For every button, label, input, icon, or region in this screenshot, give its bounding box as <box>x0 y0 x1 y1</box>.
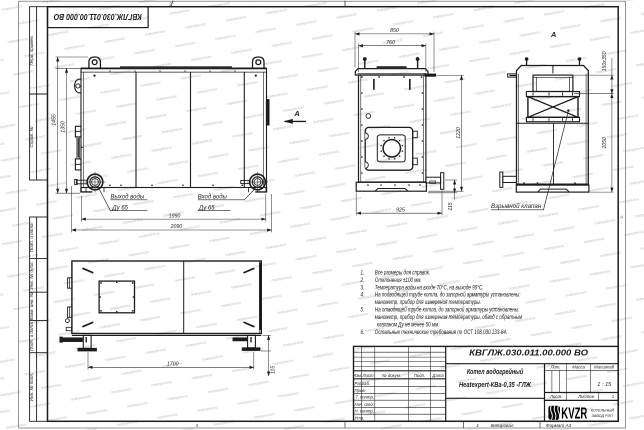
svg-text:клапаном Ду не менее 50 мм.: клапаном Ду не менее 50 мм. <box>377 322 440 329</box>
svg-text:На отводящей трубе котла, до з: На отводящей трубе котла, до запорной ар… <box>375 306 520 314</box>
svg-text:Разраб.: Разраб. <box>355 381 371 386</box>
svg-text:Масштаб: Масштаб <box>594 365 615 370</box>
svg-text:Взам. инв. №: Взам. инв. № <box>29 292 34 320</box>
svg-text:Температура воды на входе 70°С: Температура воды на входе 70°С, на выход… <box>375 285 484 292</box>
svg-text:Остальные технические требован: Остальные технические требования по ОСТ … <box>375 329 507 336</box>
svg-text:Формат А3: Формат А3 <box>546 423 572 428</box>
svg-text:2090: 2090 <box>170 224 183 230</box>
svg-text:На подводящей трубе котла, до: На подводящей трубе котла, до запорной а… <box>375 291 521 299</box>
svg-text:Лист: Лист <box>362 373 374 378</box>
svg-text:А: А <box>293 109 299 118</box>
svg-text:Подп. и дата: Подп. и дата <box>29 322 34 351</box>
svg-text:Пров.: Пров. <box>355 388 366 393</box>
svg-text:Перв. примен.: Перв. примен. <box>29 35 34 66</box>
svg-text:1050: 1050 <box>602 137 608 149</box>
svg-text:1220: 1220 <box>456 127 462 139</box>
svg-text:Все размеры для справок.: Все размеры для справок. <box>375 270 430 277</box>
svg-text:Heatexpert-КВа-0,35 -ГЛЖ: Heatexpert-КВа-0,35 -ГЛЖ <box>459 381 532 389</box>
svg-text:КВГЛЖ.030.011.00.000 ВО: КВГЛЖ.030.011.00.000 ВО <box>53 12 142 21</box>
svg-text:1: 1 <box>476 423 479 428</box>
svg-text:5.: 5. <box>361 307 365 314</box>
svg-text:Изм.: Изм. <box>353 373 362 378</box>
svg-text:Лист: Лист <box>549 394 561 399</box>
svg-text:Отклонения ±100 мм.: Отклонения ±100 мм. <box>375 277 422 284</box>
svg-text:манометр, прибор для измерения: манометр, прибор для измерения температу… <box>375 300 481 307</box>
svg-text:115: 115 <box>448 202 454 210</box>
svg-text:Утв.: Утв. <box>355 416 365 421</box>
svg-text:850: 850 <box>390 28 399 34</box>
svg-text:Справ. №: Справ. № <box>29 127 34 148</box>
svg-text:КОТЕЛЬНЫЙ: КОТЕЛЬНЫЙ <box>591 409 615 413</box>
svg-text:925: 925 <box>396 207 405 213</box>
svg-text:6.: 6. <box>361 329 365 336</box>
svg-text:А: А <box>619 215 623 220</box>
svg-text:Подп.: Подп. <box>414 373 425 378</box>
svg-text:Дата: Дата <box>431 373 444 378</box>
svg-text:3.: 3. <box>361 285 365 292</box>
svg-text:1350: 1350 <box>61 121 67 133</box>
svg-text:2.: 2. <box>360 277 365 284</box>
svg-text:760: 760 <box>386 40 395 46</box>
svg-text:1990: 1990 <box>169 213 181 219</box>
svg-text:Подп. и дата: Подп. и дата <box>29 223 34 252</box>
svg-text:Масса: Масса <box>572 365 585 370</box>
svg-text:КВГЛЖ.030.011.00.000 ВО: КВГЛЖ.030.011.00.000 ВО <box>469 348 589 358</box>
svg-text:1 : 15: 1 : 15 <box>597 382 612 388</box>
svg-text:1700: 1700 <box>167 362 179 368</box>
svg-text:Лит.: Лит. <box>550 365 561 370</box>
svg-text:№ докум.: № докум. <box>382 373 401 378</box>
svg-text:Котел водогрейный: Котел водогрейный <box>467 367 523 376</box>
svg-text:115: 115 <box>270 366 276 374</box>
svg-text:Копировал: Копировал <box>491 423 514 428</box>
svg-text:манометр, прибор для измерения: манометр, прибор для измерения температу… <box>375 315 523 322</box>
svg-text:4.: 4. <box>361 292 365 299</box>
svg-text:Взрывной клапан: Взрывной клапан <box>491 203 542 210</box>
svg-text:1.: 1. <box>361 270 365 277</box>
svg-text:Т. контр.: Т. контр. <box>356 395 375 400</box>
svg-text:Инв. № дубл.: Инв. № дубл. <box>29 261 34 289</box>
svg-text:Нач. отд.: Нач. отд. <box>355 402 374 407</box>
svg-text:1455: 1455 <box>51 114 57 126</box>
svg-text:А: А <box>550 30 556 39</box>
svg-text:150х350: 150х350 <box>602 51 608 71</box>
svg-text:Н. контр.: Н. контр. <box>355 409 374 414</box>
svg-text:ЗАВОД РЭП: ЗАВОД РЭП <box>592 414 613 418</box>
svg-text:Листов: Листов <box>577 394 594 399</box>
svg-text:KVZR: KVZR <box>561 406 587 423</box>
svg-text:Инв. № подл.: Инв. № подл. <box>29 373 34 402</box>
